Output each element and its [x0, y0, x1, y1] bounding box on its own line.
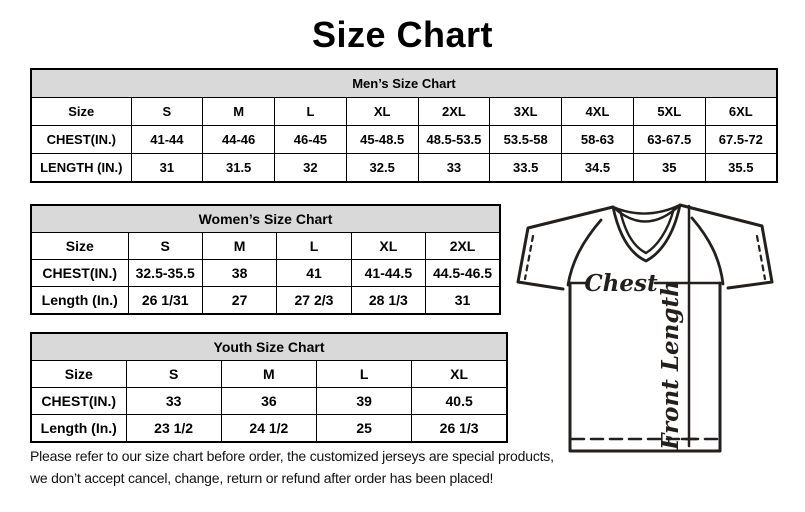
page-title: Size Chart [0, 14, 805, 56]
size-value-cell: 58-63 [562, 126, 634, 154]
size-value-cell: 44-46 [203, 126, 275, 154]
size-value-cell: L [317, 361, 412, 388]
size-table-row: CHEST(IN.)32.5-35.5384141-44.544.5-46.5 [31, 260, 500, 287]
size-value-cell: S [128, 233, 202, 260]
row-label-cell: Size [31, 233, 128, 260]
size-value-cell: 35 [633, 154, 705, 183]
disclaimer-text: Please refer to our size chart before or… [30, 446, 590, 489]
size-value-cell: 41-44 [131, 126, 203, 154]
size-value-cell: S [131, 98, 203, 126]
row-label-cell: Length (In.) [31, 287, 128, 315]
size-table-row: CHEST(IN.)33363940.5 [31, 388, 507, 415]
mens-size-chart-table: Men’s Size Chart SizeSMLXL2XL3XL4XL5XL6X… [30, 68, 778, 183]
size-value-cell: XL [412, 361, 507, 388]
size-value-cell: 27 2/3 [277, 287, 351, 315]
row-label-cell: Size [31, 361, 126, 388]
size-table-row: LENGTH (IN.)3131.53232.53333.534.53535.5 [31, 154, 777, 183]
size-value-cell: M [203, 98, 275, 126]
size-value-cell: 26 1/3 [412, 415, 507, 443]
size-value-cell: L [275, 98, 347, 126]
table-title-row: Youth Size Chart [31, 333, 507, 361]
size-value-cell: XL [351, 233, 425, 260]
size-value-cell: 46-45 [275, 126, 347, 154]
row-label-cell: CHEST(IN.) [31, 388, 126, 415]
table-title-row: Women’s Size Chart [31, 205, 500, 233]
size-value-cell: 36 [221, 388, 316, 415]
front-length-label: Front Length [657, 280, 684, 451]
size-value-cell: 35.5 [705, 154, 777, 183]
size-table-row: SizeSMLXL2XL [31, 233, 500, 260]
size-value-cell: 38 [202, 260, 276, 287]
mens-table-title: Men’s Size Chart [31, 69, 777, 98]
size-table-row: SizeSMLXL [31, 361, 507, 388]
size-value-cell: 25 [317, 415, 412, 443]
size-value-cell: XL [346, 98, 418, 126]
size-value-cell: 32.5-35.5 [128, 260, 202, 287]
size-value-cell: 63-67.5 [633, 126, 705, 154]
size-value-cell: 53.5-58 [490, 126, 562, 154]
size-value-cell: 28 1/3 [351, 287, 425, 315]
size-value-cell: 24 1/2 [221, 415, 316, 443]
womens-size-chart-table: Women’s Size Chart SizeSMLXL2XLCHEST(IN.… [30, 204, 501, 315]
size-value-cell: 33.5 [490, 154, 562, 183]
size-chart-page: Size Chart Men’s Size Chart SizeSMLXL2XL… [0, 0, 805, 512]
size-value-cell: 44.5-46.5 [426, 260, 500, 287]
womens-table-title: Women’s Size Chart [31, 205, 500, 233]
size-value-cell: 26 1/31 [128, 287, 202, 315]
row-label-cell: Size [31, 98, 131, 126]
size-value-cell: 2XL [426, 233, 500, 260]
disclaimer-line-2: we don’t accept cancel, change, return o… [30, 468, 590, 490]
size-value-cell: 4XL [562, 98, 634, 126]
size-table-row: Length (In.)23 1/224 1/22526 1/3 [31, 415, 507, 443]
size-value-cell: 48.5-53.5 [418, 126, 490, 154]
size-value-cell: 33 [418, 154, 490, 183]
size-value-cell: 3XL [490, 98, 562, 126]
shirt-measurement-diagram: Chest Front Length [508, 193, 805, 465]
size-value-cell: 27 [202, 287, 276, 315]
size-value-cell: 32.5 [346, 154, 418, 183]
youth-table-title: Youth Size Chart [31, 333, 507, 361]
size-value-cell: 45-48.5 [346, 126, 418, 154]
size-value-cell: 23 1/2 [126, 415, 221, 443]
size-value-cell: 41 [277, 260, 351, 287]
size-value-cell: 2XL [418, 98, 490, 126]
table-title-row: Men’s Size Chart [31, 69, 777, 98]
size-value-cell: 41-44.5 [351, 260, 425, 287]
size-value-cell: S [126, 361, 221, 388]
size-value-cell: 32 [275, 154, 347, 183]
disclaimer-line-1: Please refer to our size chart before or… [30, 446, 590, 468]
size-value-cell: 31 [426, 287, 500, 315]
size-value-cell: 31 [131, 154, 203, 183]
size-table-row: SizeSMLXL2XL3XL4XL5XL6XL [31, 98, 777, 126]
size-table-row: Length (In.)26 1/312727 2/328 1/331 [31, 287, 500, 315]
size-value-cell: M [202, 233, 276, 260]
size-value-cell: 33 [126, 388, 221, 415]
size-value-cell: 6XL [705, 98, 777, 126]
size-value-cell: M [221, 361, 316, 388]
size-value-cell: 39 [317, 388, 412, 415]
size-value-cell: 34.5 [562, 154, 634, 183]
size-value-cell: 5XL [633, 98, 705, 126]
size-table-row: CHEST(IN.)41-4444-4646-4545-48.548.5-53.… [31, 126, 777, 154]
youth-size-chart-table: Youth Size Chart SizeSMLXLCHEST(IN.)3336… [30, 332, 508, 443]
size-value-cell: L [277, 233, 351, 260]
chest-label: Chest [584, 270, 658, 297]
row-label-cell: CHEST(IN.) [31, 260, 128, 287]
right-sleeve-seam [692, 218, 723, 284]
size-value-cell: 31.5 [203, 154, 275, 183]
row-label-cell: Length (In.) [31, 415, 126, 443]
size-value-cell: 67.5-72 [705, 126, 777, 154]
shirt-body-outline [570, 283, 720, 451]
row-label-cell: LENGTH (IN.) [31, 154, 131, 183]
row-label-cell: CHEST(IN.) [31, 126, 131, 154]
size-value-cell: 40.5 [412, 388, 507, 415]
